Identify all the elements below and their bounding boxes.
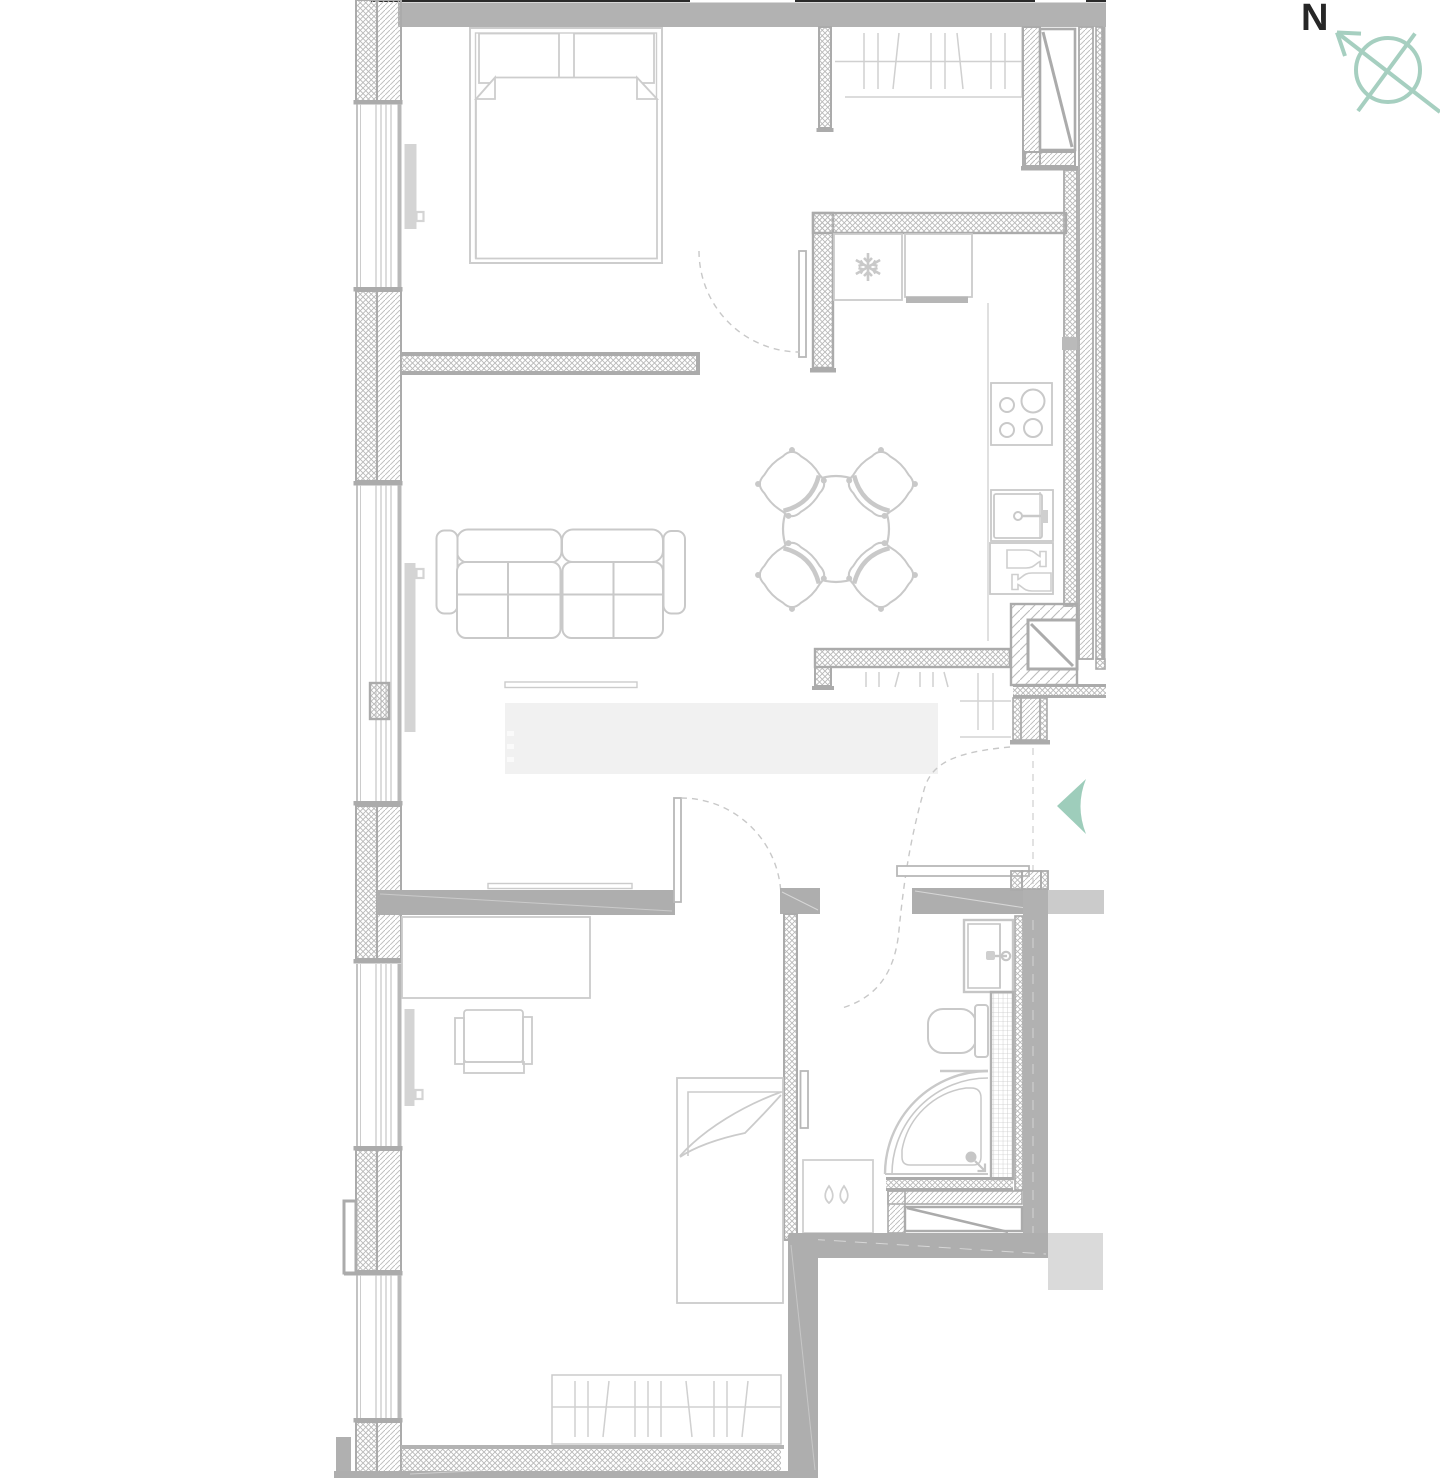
svg-text:N: N [1301,0,1328,39]
